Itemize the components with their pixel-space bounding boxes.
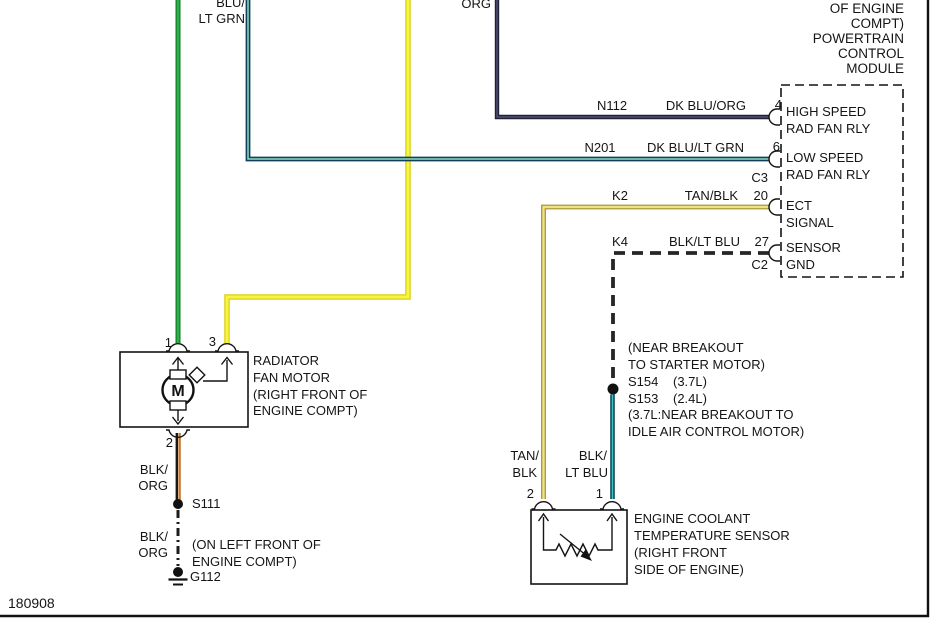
blkorg-lower-line1: BLK/ <box>140 529 169 544</box>
circuit-n201: N201 <box>584 140 615 155</box>
breakout-line2: TO STARTER MOTOR) <box>628 357 765 372</box>
thermistor-element <box>544 517 613 556</box>
pin-6: 6 <box>773 139 780 154</box>
pcm-title-line4: CONTROL <box>838 46 904 61</box>
breakout-s153: S153 <box>628 391 658 406</box>
connector-c2: C2 <box>751 257 768 272</box>
top-label-org: ORG <box>461 0 491 11</box>
pcm-pin20-terminal <box>769 199 780 215</box>
breakout-line6: IDLE AIR CONTROL MOTOR) <box>628 424 804 439</box>
pcm-fn-sensor: SENSOR <box>786 240 841 255</box>
wirecolor-k2: TAN/BLK <box>685 188 739 203</box>
motor-brush-bottom <box>170 401 186 410</box>
sensor-label-line1: ENGINE COOLANT <box>634 511 750 526</box>
ground-dot-g112 <box>173 567 183 577</box>
pcm-fn-lowspeed2: RAD FAN RLY <box>786 167 871 182</box>
pcm-fn-gnd: GND <box>786 257 815 272</box>
sensor-pin1-terminal <box>600 502 624 509</box>
sensor-label-line3: (RIGHT FRONT <box>634 545 727 560</box>
sensor-wire1-label-line1: BLK/ <box>579 448 608 463</box>
ground-location-line1: (ON LEFT FRONT OF <box>192 537 321 552</box>
fan-label-line1: RADIATOR <box>253 353 319 368</box>
wirecolor-n201: DK BLU/LT GRN <box>647 140 744 155</box>
sensor-wire2-label-line1: TAN/ <box>510 448 539 463</box>
splice-dot-s111 <box>173 499 183 509</box>
wire-yellow-under <box>227 0 408 343</box>
pcm-fn-signal: SIGNAL <box>786 215 834 230</box>
pcm-title-line1: OF ENGINE <box>830 1 904 16</box>
sensor-label-line2: TEMPERATURE SENSOR <box>634 528 790 543</box>
pcm-title-line5: MODULE <box>846 61 904 76</box>
fan-pin3-terminal <box>215 344 239 351</box>
circuit-k4: K4 <box>612 234 628 249</box>
pin-20: 20 <box>754 188 768 203</box>
blkorg-upper-line1: BLK/ <box>140 462 169 477</box>
pcm-fn-lowspeed: LOW SPEED <box>786 150 863 165</box>
fan-pin1-number: 1 <box>165 335 172 350</box>
breakout-s154-engine: (3.7L) <box>673 374 707 389</box>
motor-brush-top <box>170 370 186 379</box>
sensor-label-line4: SIDE OF ENGINE) <box>634 562 744 577</box>
fan-pin3-number: 3 <box>209 334 216 349</box>
wirecolor-k4: BLK/LT BLU <box>669 234 740 249</box>
sensor-pin1-number: 1 <box>596 486 603 501</box>
fan-label-line2: FAN MOTOR <box>253 370 330 385</box>
fan-pin2-number: 2 <box>166 435 173 450</box>
ground-location-line2: ENGINE COMPT) <box>192 554 297 569</box>
wirecolor-n112: DK BLU/ORG <box>666 98 746 113</box>
pin-27: 27 <box>755 234 769 249</box>
sensor-pin2-number: 2 <box>527 486 534 501</box>
circuit-n112: N112 <box>597 98 627 113</box>
breakout-s153-engine: (2.4L) <box>673 391 707 406</box>
pcm-title-line3: POWERTRAIN <box>813 31 904 46</box>
fan-label-line3: (RIGHT FRONT OF <box>253 387 367 402</box>
splice-s111-label: S111 <box>192 496 220 511</box>
wiring-diagram-page: OF ENGINE COMPT) POWERTRAIN CONTROL MODU… <box>0 0 931 622</box>
pin-4: 4 <box>775 97 782 112</box>
connector-c3: C3 <box>751 170 768 185</box>
sensor-pin2-terminal <box>532 502 556 509</box>
breakout-line1: (NEAR BREAKOUT <box>628 340 744 355</box>
splice-dot-s154 <box>608 384 619 395</box>
ground-g112-label: G112 <box>190 569 221 584</box>
top-label-ltgrn-line2: LT GRN <box>199 11 245 26</box>
sensor-wire1-label-line2: LT BLU <box>565 465 608 480</box>
wire-n201 <box>248 0 769 159</box>
pcm-fn-highspeed: HIGH SPEED <box>786 104 866 119</box>
wire-n201-under <box>248 0 769 159</box>
pcm-fn-ect: ECT <box>786 198 812 213</box>
pcm-title-line2: COMPT) <box>851 16 904 31</box>
wire-yellow <box>227 0 408 343</box>
breakout-s154: S154 <box>628 374 658 389</box>
top-label-ltgrn-line1: BLU/ <box>216 0 245 10</box>
breakout-line5: (3.7L:NEAR BREAKOUT TO <box>628 407 793 422</box>
motor-letter: M <box>171 383 184 400</box>
blkorg-lower-line2: ORG <box>138 545 168 560</box>
wiring-diagram: OF ENGINE COMPT) POWERTRAIN CONTROL MODU… <box>0 0 931 622</box>
sensor-wire2-label-line2: BLK <box>512 465 537 480</box>
diagram-id: 180908 <box>8 595 55 611</box>
circuit-k2: K2 <box>612 188 628 203</box>
fan-label-line4: ENGINE COMPT) <box>253 403 358 418</box>
pcm-fn-highspeed2: RAD FAN RLY <box>786 121 871 136</box>
blkorg-upper-line2: ORG <box>138 478 168 493</box>
pcm-pin27-terminal <box>769 245 780 261</box>
